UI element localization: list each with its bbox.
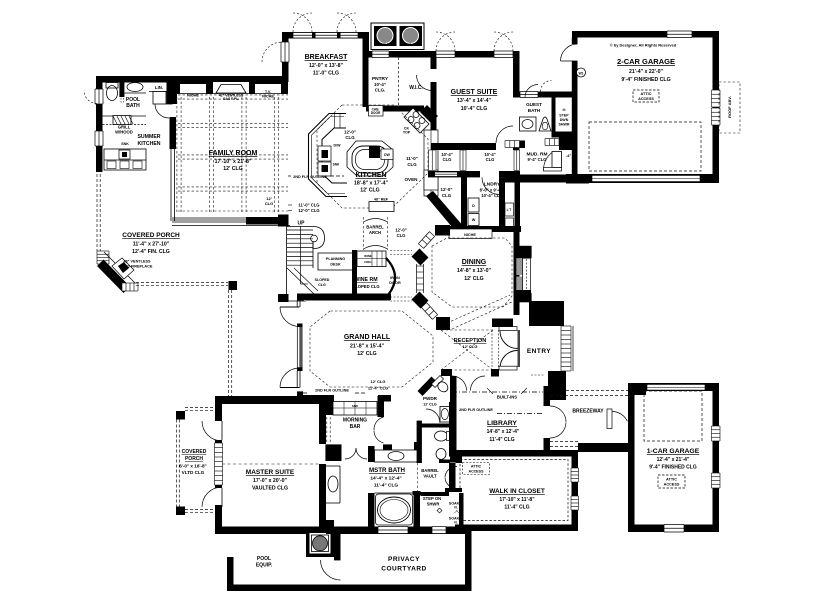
svg-text:OVEN: OVEN — [404, 177, 418, 182]
svg-text:12' CLG: 12' CLG — [463, 344, 478, 349]
svg-text:14'-8" x 12'-4": 14'-8" x 12'-4" — [487, 429, 520, 435]
svg-text:10'-4" CLG: 10'-4" CLG — [481, 193, 502, 198]
svg-text:9'-4" CLG: 9'-4" CLG — [527, 157, 546, 162]
svg-text:LIBRARY: LIBRARY — [487, 420, 517, 427]
svg-text:EQUIP.: EQUIP. — [256, 563, 273, 569]
svg-text:13'-4" x 14'-4": 13'-4" x 14'-4" — [457, 98, 491, 104]
svg-text:N.: N. — [454, 506, 457, 510]
svg-text:PORCH: PORCH — [185, 456, 203, 462]
svg-text:12'-0" CLG: 12'-0" CLG — [298, 208, 319, 213]
svg-text:POOL: POOL — [257, 556, 271, 562]
svg-text:FAMILY ROOM: FAMILY ROOM — [209, 150, 258, 157]
svg-text:CLG: CLG — [345, 135, 355, 140]
svg-text:NICHE: NICHE — [464, 233, 476, 237]
svg-text:9'-4" FINISHED CLG: 9'-4" FINISHED CLG — [649, 465, 697, 471]
svg-text:FRIG: FRIG — [364, 260, 372, 264]
svg-text:DWN: DWN — [560, 118, 569, 122]
svg-text:18" PLATE: 18" PLATE — [378, 42, 393, 46]
svg-text:CLG: CLG — [443, 157, 452, 162]
svg-text:GUEST: GUEST — [526, 102, 542, 107]
svg-text:9'-4" FINISHED CLG: 9'-4" FINISHED CLG — [621, 77, 670, 83]
svg-text:IRON: IRON — [390, 276, 400, 280]
svg-text:MASTER SUITE: MASTER SUITE — [246, 469, 295, 476]
svg-text:12' CLG: 12' CLG — [223, 166, 242, 172]
svg-text:COVERED PORCH: COVERED PORCH — [122, 232, 180, 239]
svg-text:DW: DW — [384, 153, 390, 157]
svg-text:12'-0": 12'-0" — [441, 187, 453, 192]
svg-text:D: D — [472, 204, 475, 208]
svg-text:12'-4" FIN. CLG: 12'-4" FIN. CLG — [132, 249, 170, 255]
svg-text:8'-0" x 9'-4": 8'-0" x 9'-4" — [480, 188, 503, 193]
svg-text:TOP: TOP — [403, 131, 411, 135]
svg-text:SLOPED CLG: SLOPED CLG — [352, 284, 379, 289]
svg-text:WINE RM: WINE RM — [354, 277, 377, 283]
svg-text:12'-4" x 21'-4": 12'-4" x 21'-4" — [657, 457, 690, 463]
svg-text:17'-10" x 21'-8": 17'-10" x 21'-8" — [215, 159, 252, 165]
svg-text:2ND FLR OUTLINE: 2ND FLR OUTLINE — [293, 175, 327, 179]
svg-text:SNK: SNK — [121, 142, 129, 146]
svg-text:SLOPED: SLOPED — [315, 278, 330, 282]
svg-text:ACCESS: ACCESS — [638, 97, 654, 101]
svg-text:SUMMER: SUMMER — [137, 134, 160, 140]
svg-text:PRIVACY: PRIVACY — [388, 556, 420, 563]
svg-text:CLG: CLG — [265, 201, 273, 206]
svg-text:D/W: D/W — [334, 144, 342, 148]
svg-text:© by Designer, All Rights Rese: © by Designer, All Rights Reserved — [610, 43, 677, 48]
svg-text:PWDR: PWDR — [423, 396, 438, 401]
svg-text:BREAKFAST: BREAKFAST — [305, 54, 349, 61]
svg-text:12' CLG: 12' CLG — [371, 379, 386, 384]
svg-text:BUILT-INS: BUILT-INS — [497, 395, 517, 400]
svg-text:12' CLG: 12' CLG — [464, 276, 483, 282]
svg-text:ACCESS: ACCESS — [469, 470, 485, 474]
svg-text:STEP ON: STEP ON — [423, 496, 441, 501]
svg-text:PLANNING: PLANNING — [326, 257, 345, 261]
svg-text:MORNING: MORNING — [343, 418, 367, 424]
svg-text:L'T: L'T — [507, 208, 512, 212]
svg-text:SNK: SNK — [352, 404, 359, 408]
svg-text:21'-4" x 22'-0": 21'-4" x 22'-0" — [629, 69, 663, 75]
svg-text:6'-0" x 16'-8": 6'-0" x 16'-8" — [179, 464, 206, 469]
svg-text:KITCHEN: KITCHEN — [355, 172, 386, 179]
svg-text:GUEST SUITE: GUEST SUITE — [451, 89, 498, 96]
svg-text:VLTD CLG: VLTD CLG — [182, 470, 205, 475]
svg-text:48" VENTLESS: 48" VENTLESS — [123, 260, 151, 264]
svg-text:11'-4" CLG: 11'-4" CLG — [368, 386, 388, 391]
svg-text:UP: UP — [298, 221, 306, 227]
svg-text:12' CLG: 12' CLG — [360, 188, 379, 194]
svg-text:CLG.: CLG. — [375, 88, 386, 93]
svg-text:VAULTED CLG: VAULTED CLG — [252, 486, 288, 492]
svg-text:12'-0": 12'-0" — [395, 228, 406, 233]
svg-text:W: W — [472, 218, 476, 222]
svg-text:W/HOOD: W/HOOD — [115, 130, 133, 135]
svg-text:10'-4": 10'-4" — [374, 82, 386, 87]
svg-text:DOOR: DOOR — [389, 281, 401, 285]
svg-text:BARREL: BARREL — [366, 225, 384, 230]
svg-text:DOOR: DOOR — [371, 111, 381, 115]
svg-text:11'-4" CLG: 11'-4" CLG — [489, 437, 514, 443]
svg-text:ATTIC: ATTIC — [471, 465, 482, 469]
svg-text:-4": -4" — [566, 153, 572, 158]
svg-text:SNK: SNK — [333, 163, 340, 167]
svg-text:COVERED: COVERED — [182, 449, 207, 455]
svg-text:BARREL: BARREL — [421, 468, 439, 473]
svg-text:GAS FIREPLACE: GAS FIREPLACE — [122, 265, 153, 269]
svg-text:ACCESS: ACCESS — [664, 483, 680, 487]
svg-text:17'-10" x 11'-8": 17'-10" x 11'-8" — [499, 497, 535, 503]
svg-text:CLG: CLG — [318, 283, 326, 287]
svg-text:BATH: BATH — [528, 108, 541, 113]
svg-text:21'-8" x 15'-4": 21'-8" x 15'-4" — [350, 344, 384, 350]
svg-text:48" REF: 48" REF — [374, 198, 389, 202]
svg-text:2ND FLR OUTLINE: 2ND FLR OUTLINE — [459, 408, 493, 412]
svg-text:DESK: DESK — [330, 263, 341, 267]
svg-text:17'-0" x 20'-0": 17'-0" x 20'-0" — [253, 478, 287, 484]
svg-text:ATTIC: ATTIC — [666, 478, 677, 482]
svg-text:14'-4" x 12'-4": 14'-4" x 12'-4" — [370, 476, 401, 482]
svg-text:DINING: DINING — [462, 259, 487, 266]
svg-text:ATTIC: ATTIC — [641, 92, 652, 96]
svg-text:CLG: CLG — [486, 157, 495, 162]
svg-text:SHWR: SHWR — [427, 502, 440, 507]
svg-text:ENTRY: ENTRY — [527, 348, 551, 355]
svg-text:WALK IN CLOSET: WALK IN CLOSET — [489, 488, 545, 495]
svg-text:COURTYARD: COURTYARD — [381, 566, 426, 573]
svg-text:NICHE: NICHE — [187, 94, 199, 98]
svg-text:LIN.: LIN. — [155, 85, 163, 90]
svg-text:VAULT: VAULT — [423, 474, 437, 479]
svg-text:18" PLATE: 18" PLATE — [403, 42, 418, 46]
svg-text:2ND FLR OUTLINE: 2ND FLR OUTLINE — [315, 389, 349, 393]
svg-text:KITCHEN: KITCHEN — [137, 141, 160, 147]
svg-text:11'-4" CLG: 11'-4" CLG — [374, 483, 398, 489]
svg-text:CLG: CLG — [442, 193, 452, 198]
svg-text:ROOF ABV.: ROOF ABV. — [727, 96, 732, 118]
svg-text:1-CAR GARAGE: 1-CAR GARAGE — [647, 448, 700, 455]
svg-text:11'-0": 11'-0" — [406, 156, 418, 161]
svg-text:WINE: WINE — [364, 254, 372, 258]
svg-text:11'-0" CLG: 11'-0" CLG — [298, 203, 319, 208]
svg-text:ARCH: ARCH — [369, 230, 381, 235]
svg-text:STEP: STEP — [559, 114, 569, 118]
svg-text:11'-4" x 27'-10": 11'-4" x 27'-10" — [133, 242, 170, 248]
svg-text:12'-0": 12'-0" — [344, 130, 356, 135]
svg-text:18'-8" x 17'-4": 18'-8" x 17'-4" — [354, 181, 388, 187]
svg-text:W1: W1 — [579, 72, 584, 76]
svg-text:12' CLG: 12' CLG — [357, 351, 376, 357]
svg-text:CLG: CLG — [397, 233, 406, 238]
svg-text:14'-8" x 13'-0": 14'-8" x 13'-0" — [457, 268, 491, 274]
svg-text:GRAND HALL: GRAND HALL — [344, 334, 391, 341]
svg-text:2-CAR GARAGE: 2-CAR GARAGE — [617, 57, 675, 66]
svg-text:12' CLG: 12' CLG — [423, 403, 437, 407]
svg-text:MSTR BATH: MSTR BATH — [369, 467, 406, 474]
svg-text:CLG: CLG — [407, 162, 417, 167]
svg-text:SHWR: SHWR — [559, 123, 570, 127]
svg-text:11'-4" CLG: 11'-4" CLG — [504, 505, 529, 511]
svg-text:BATH: BATH — [126, 103, 140, 109]
svg-text:BAR: BAR — [350, 424, 361, 430]
svg-text:12'-0" x 13'-8": 12'-0" x 13'-8" — [309, 63, 343, 69]
svg-text:N.: N. — [454, 521, 457, 525]
svg-text:BREEZEWAY: BREEZEWAY — [572, 409, 604, 415]
svg-text:10'-4" CLG: 10'-4" CLG — [461, 106, 487, 112]
svg-text:11'-0" CLG: 11'-0" CLG — [313, 71, 339, 77]
